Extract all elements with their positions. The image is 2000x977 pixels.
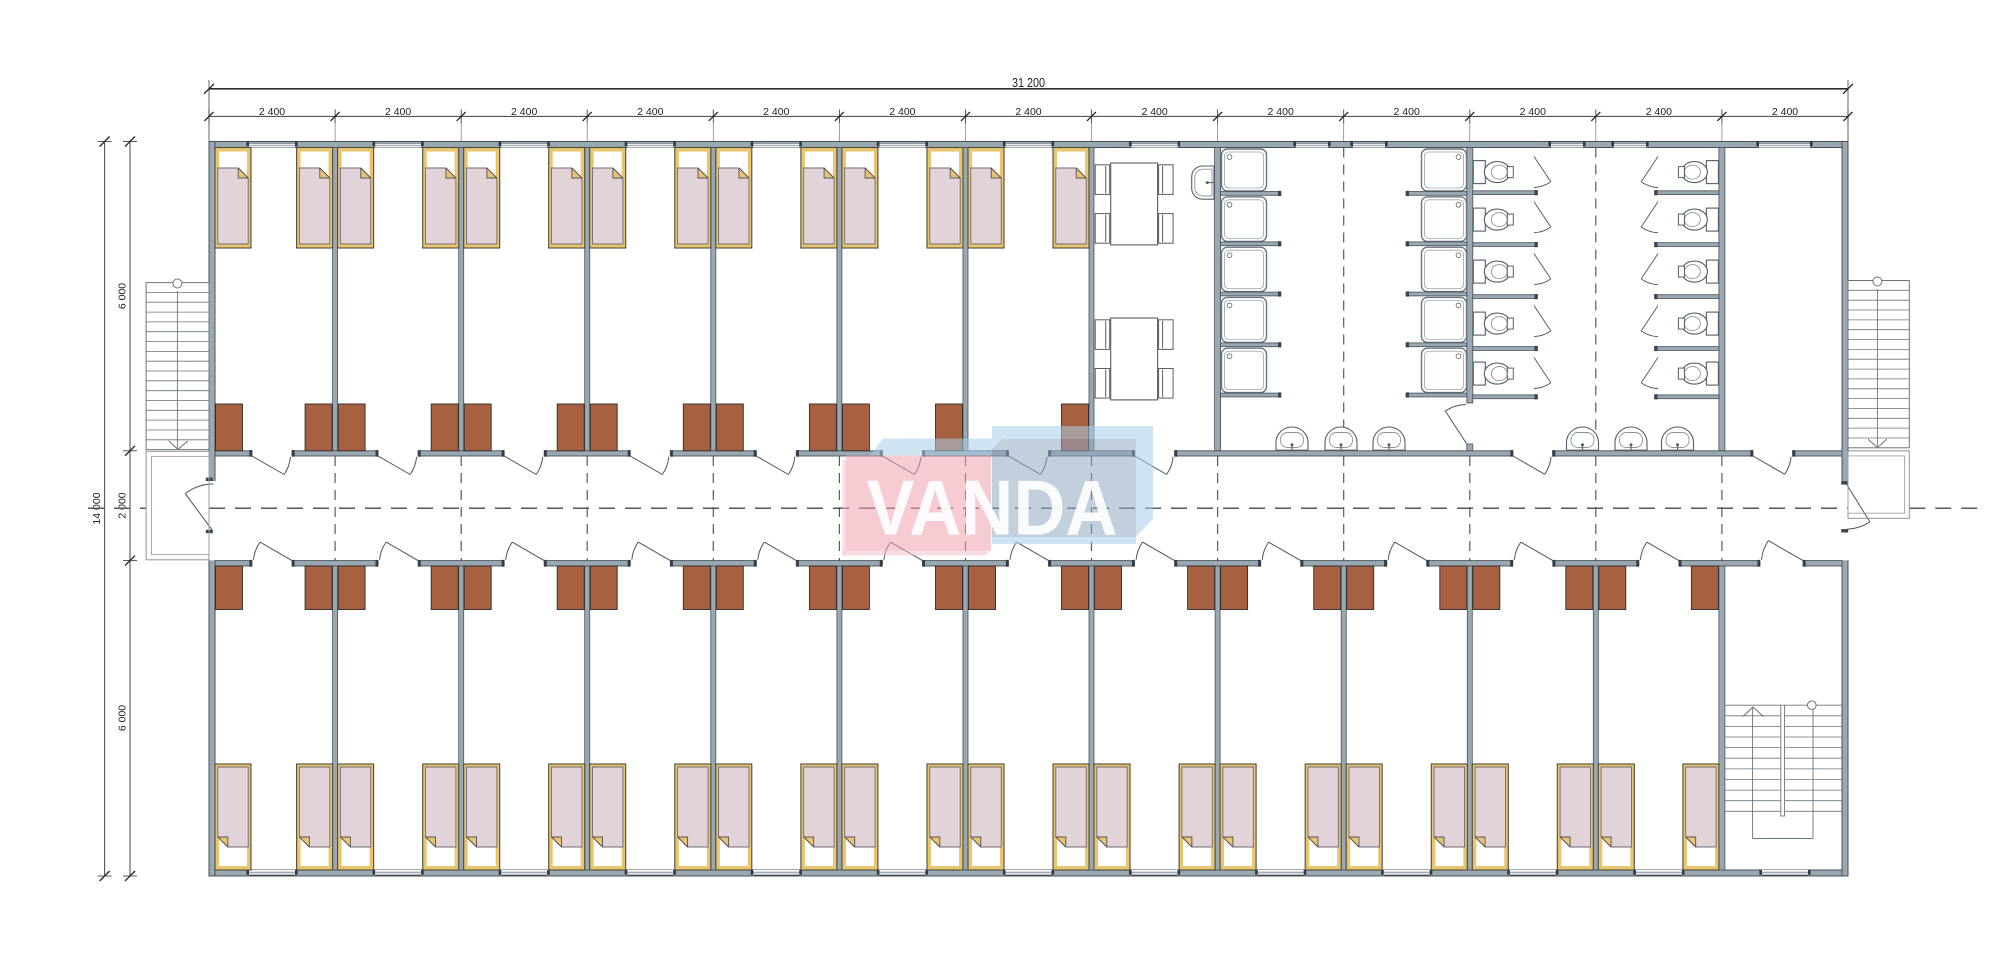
svg-text:6 000: 6 000	[117, 705, 129, 731]
svg-text:2 000: 2 000	[117, 492, 129, 518]
svg-text:6 000: 6 000	[117, 283, 129, 309]
svg-text:2 400: 2 400	[889, 106, 915, 118]
svg-text:2 400: 2 400	[1268, 106, 1294, 118]
svg-text:31 200: 31 200	[1012, 75, 1045, 90]
svg-text:2 400: 2 400	[1772, 106, 1798, 118]
svg-text:VANDA: VANDA	[867, 464, 1118, 552]
svg-text:2 400: 2 400	[637, 106, 663, 118]
svg-text:2 400: 2 400	[763, 106, 789, 118]
svg-text:2 400: 2 400	[1394, 106, 1420, 118]
svg-text:2 400: 2 400	[1520, 106, 1546, 118]
svg-text:2 400: 2 400	[1141, 106, 1167, 118]
svg-text:2 400: 2 400	[1646, 106, 1672, 118]
svg-text:2 400: 2 400	[511, 106, 537, 118]
svg-text:2 400: 2 400	[259, 106, 285, 118]
svg-text:2 400: 2 400	[385, 106, 411, 118]
svg-text:2 400: 2 400	[1015, 106, 1041, 118]
